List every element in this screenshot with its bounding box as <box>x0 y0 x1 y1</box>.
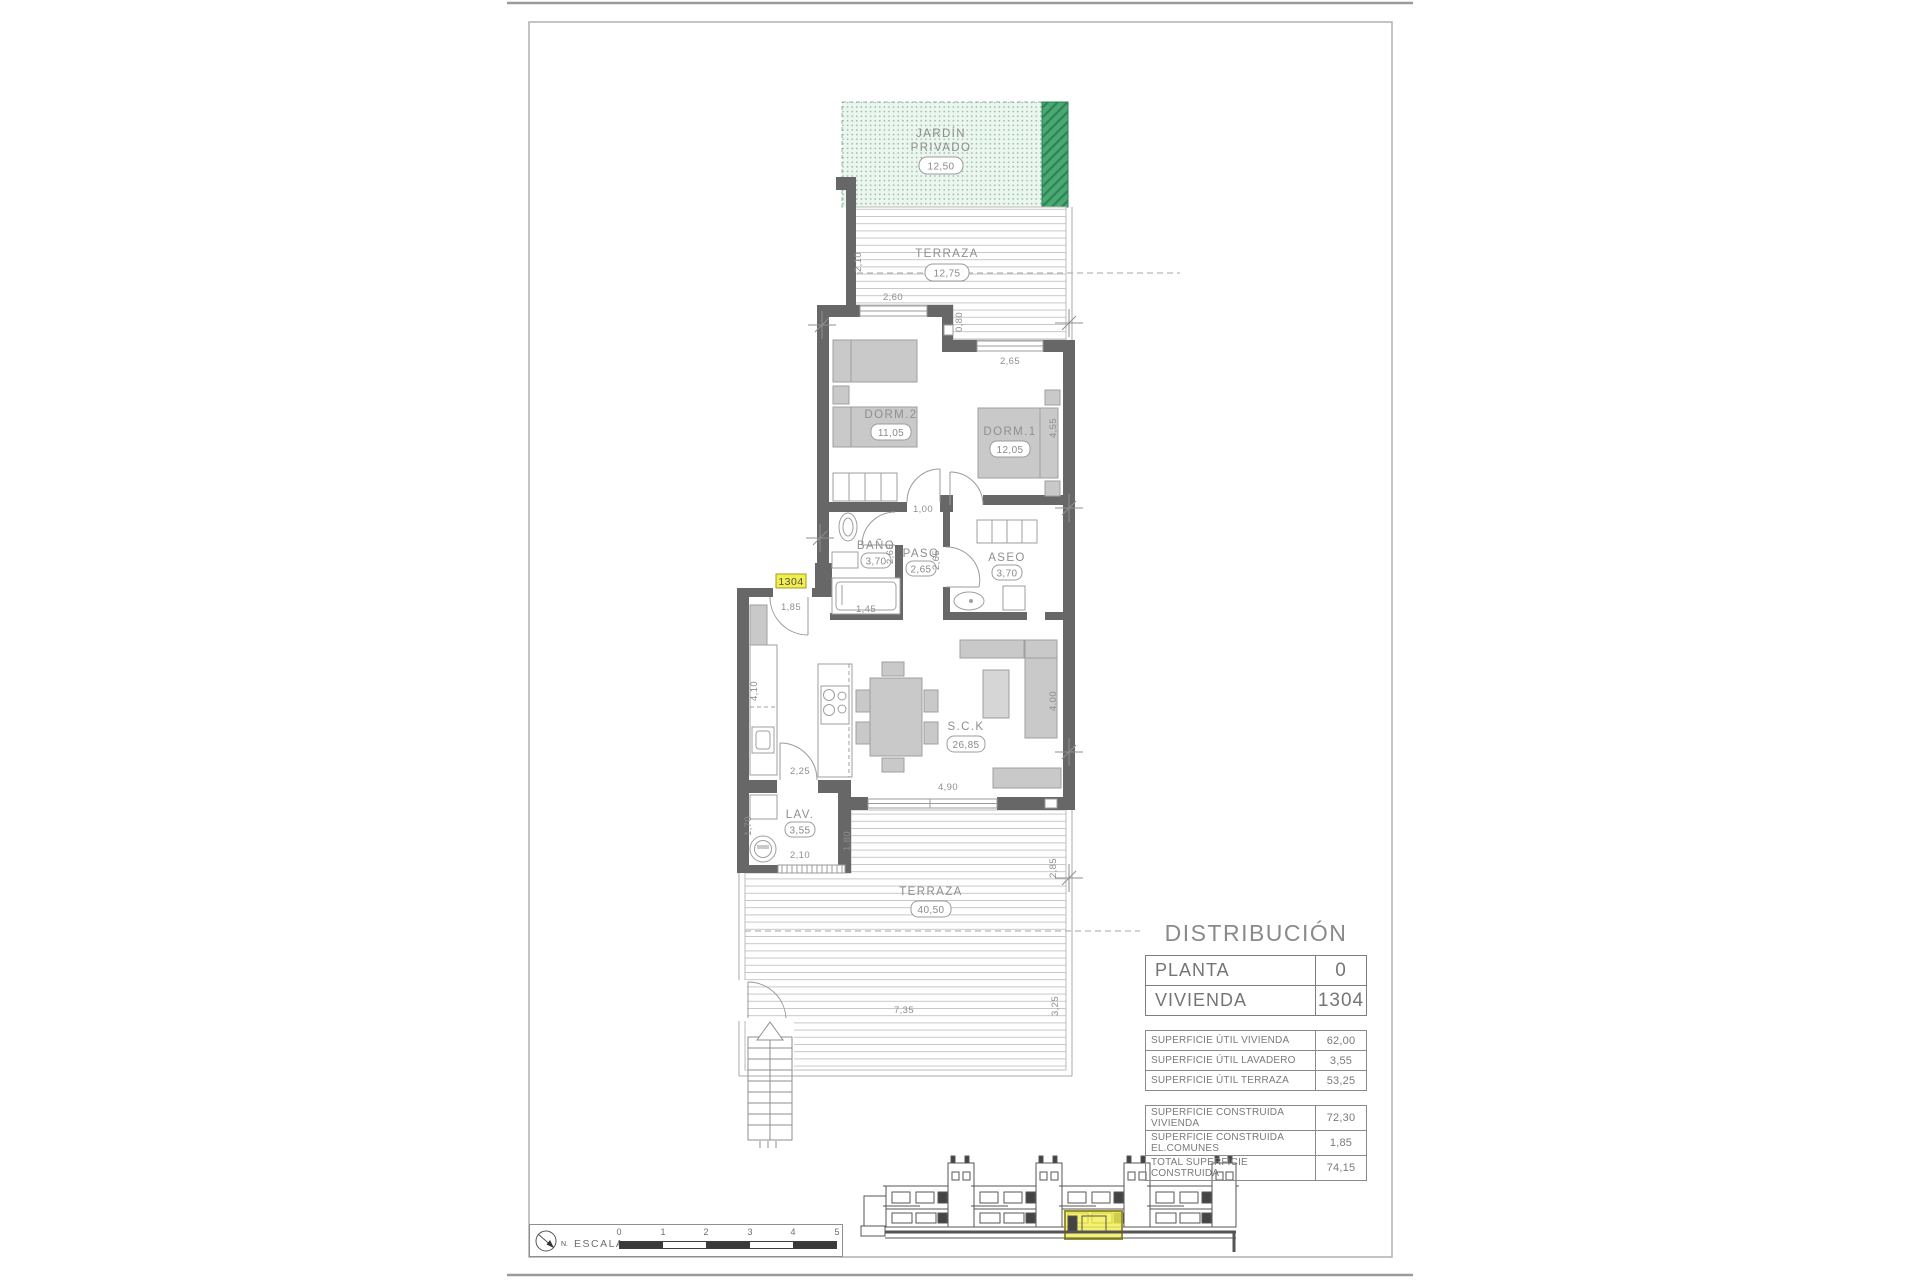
lav-vent-icon <box>778 865 845 873</box>
svg-text:DORM.1: DORM.1 <box>983 426 1036 438</box>
terrace-north-area-badge: 12,75 <box>933 269 960 280</box>
dim-dorm1-ancho: 2,65 <box>1000 356 1020 367</box>
dim-terraza-sur-der: 2,85 <box>1048 858 1059 878</box>
dorm2-window-icon <box>860 306 927 316</box>
planta-label: PLANTA <box>1146 956 1316 986</box>
svg-text:1304: 1304 <box>778 576 803 588</box>
scale-tick: 2 <box>703 1227 708 1237</box>
dim-cocina-fondo: 4,10 <box>749 681 760 701</box>
svg-text:TERRAZA: TERRAZA <box>899 886 962 898</box>
built-surface-table: SUPERFICIE CONSTRUIDA VIVIENDA 72,30 SUP… <box>1145 1105 1367 1181</box>
terrace-north-decking <box>855 207 1180 340</box>
table-row: VIVIENDA 1304 <box>1146 986 1367 1016</box>
planta-value: 0 <box>1316 956 1367 986</box>
dim-dorm2-ancho: 2,60 <box>883 292 903 303</box>
svg-text:ASEO: ASEO <box>988 552 1026 564</box>
table-row: SUPERFICIE ÚTIL VIVIENDA 62,00 <box>1146 1031 1367 1051</box>
svg-text:S.C.K: S.C.K <box>947 721 984 733</box>
garden-area-badge: 12,50 <box>927 162 954 173</box>
plan-sheet-page: JARDÍN PRIVADO 12,50 TERRAZA 12,75 DORM.… <box>0 0 1920 1280</box>
aseo-label: ASEO 3,70 <box>988 552 1026 580</box>
dim-terraza-sur-ancho: 7,35 <box>894 1005 914 1016</box>
garden-label-line2: PRIVADO <box>911 142 972 154</box>
salon-label: S.C.K 26,85 <box>947 721 985 752</box>
private-garden-area <box>842 102 1068 207</box>
table-row: SUPERFICIE ÚTIL LAVADERO 3,55 <box>1146 1051 1367 1071</box>
distribution-header-table: PLANTA 0 VIVIENDA 1304 <box>1145 955 1367 1016</box>
lavadero-fixtures <box>750 795 777 862</box>
dorm1-window-icon <box>977 341 1043 351</box>
north-label: N. <box>561 1241 568 1248</box>
scale-tick: 4 <box>790 1227 795 1237</box>
north-arrow-icon <box>533 1228 563 1254</box>
salon-area-badge: 26,85 <box>952 740 979 751</box>
vivienda-value: 1304 <box>1316 986 1367 1016</box>
scale-tick: 5 <box>834 1227 839 1237</box>
scale-panel: N. ESCALA : 0 1 2 3 4 5 <box>529 1224 843 1257</box>
garden-label-line1: JARDÍN <box>916 127 966 140</box>
aseo-fixtures <box>954 586 1025 610</box>
floor-plan-drawing: JARDÍN PRIVADO 12,50 TERRAZA 12,75 DORM.… <box>0 0 1920 1280</box>
dim-bano-fondo: 2,65 <box>885 544 896 564</box>
paso-area-badge: 2,65 <box>910 565 931 576</box>
living-small-window-icon <box>1045 799 1057 808</box>
useful-surface-table: SUPERFICIE ÚTIL VIVIENDA 62,00 SUPERFICI… <box>1145 1030 1367 1091</box>
svg-text:DORM.2: DORM.2 <box>864 409 917 421</box>
terrace-south-area-badge: 40,50 <box>917 905 944 916</box>
svg-text:LAV.: LAV. <box>786 809 815 821</box>
elevation-highlighted-unit <box>1065 1211 1122 1239</box>
distribution-panel: DISTRIBUCIÓN PLANTA 0 VIVIENDA 1304 SUPE… <box>1145 920 1367 1181</box>
dim-lav-ancho: 2,10 <box>790 850 810 861</box>
lavadero-area-badge: 3,55 <box>789 826 810 837</box>
dim-entrada: 1,85 <box>781 602 801 613</box>
living-sliding-door-icon <box>868 799 997 808</box>
dim-salon-fondo: 4,00 <box>1048 691 1059 711</box>
scale-bar <box>619 1241 837 1249</box>
dim-terraza-norte: 2,10 <box>853 252 864 272</box>
table-row: SUPERFICIE ÚTIL TERRAZA 53,25 <box>1146 1071 1367 1091</box>
dining-set <box>856 662 938 772</box>
dorm2-area-badge: 11,05 <box>878 428 904 439</box>
garden-label: JARDÍN PRIVADO 12,50 <box>911 127 972 174</box>
living-furniture <box>960 640 1061 788</box>
dim-lav-fondo: 1,70 <box>743 816 754 836</box>
dorm1-furniture <box>977 390 1060 543</box>
table-row: PLANTA 0 <box>1146 956 1367 986</box>
dorm1-area-badge: 12,05 <box>996 445 1023 456</box>
aseo-area-badge: 3,70 <box>996 569 1017 580</box>
vivienda-label: VIVIENDA <box>1146 986 1316 1016</box>
scale-tick: 3 <box>747 1227 752 1237</box>
dim-lav-puerta: 2,25 <box>790 766 810 777</box>
table-row: SUPERFICIE CONSTRUIDA VIVIENDA 72,30 <box>1146 1106 1367 1131</box>
elevation-ground <box>861 1226 1236 1252</box>
dim-dorm2-puerta: 1,00 <box>913 504 933 515</box>
dorm2-door-icon <box>907 469 940 502</box>
scale-tick: 0 <box>616 1227 621 1237</box>
exterior-stairs <box>746 1018 794 1148</box>
dim-terraza-paso: 0,80 <box>954 312 965 332</box>
kitchen-fixtures <box>750 605 852 777</box>
dim-terraza-sur-lateral: 3,25 <box>1050 996 1061 1016</box>
lavadero-label: LAV. 3,55 <box>785 809 815 837</box>
dim-terraza-sur-izq: 1,80 <box>842 831 853 851</box>
dim-dorm1-fondo: 4,55 <box>1048 418 1059 438</box>
bano-area-badge: 3,70 <box>865 557 886 568</box>
dim-bano-ancho: 1,45 <box>856 604 876 615</box>
table-row: TOTAL SUPERFICIE CONSTRUIDA 74,15 <box>1146 1156 1367 1181</box>
unit-number-badge: 1304 <box>776 574 806 588</box>
distribution-title: DISTRIBUCIÓN <box>1145 920 1367 947</box>
scale-tick: 1 <box>660 1227 665 1237</box>
svg-text:TERRAZA: TERRAZA <box>915 248 978 260</box>
divider-window-icon <box>944 325 953 335</box>
dim-salon-ventanal: 4,90 <box>938 782 958 793</box>
dim-paso-fondo: 2,65 <box>931 550 942 570</box>
table-row: SUPERFICIE CONSTRUIDA EL.COMUNES 1,85 <box>1146 1131 1367 1156</box>
aseo-door-icon <box>946 547 980 587</box>
